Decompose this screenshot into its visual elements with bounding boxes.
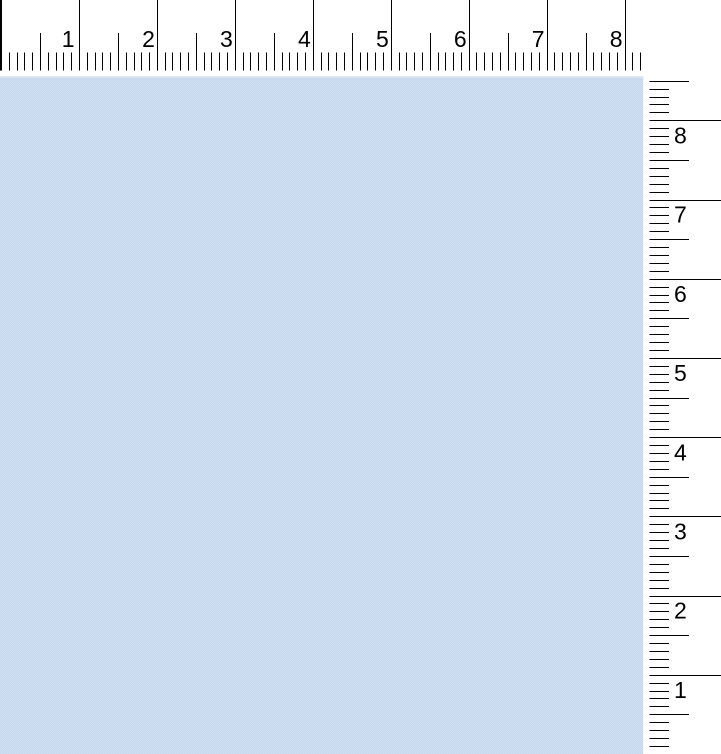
svg-text:1: 1: [62, 26, 75, 52]
svg-text:1: 1: [674, 677, 687, 703]
svg-text:6: 6: [674, 281, 687, 307]
svg-text:8: 8: [610, 26, 623, 52]
svg-text:2: 2: [674, 598, 687, 624]
svg-text:3: 3: [220, 26, 233, 52]
svg-text:4: 4: [674, 439, 687, 465]
svg-text:7: 7: [532, 26, 545, 52]
svg-text:7: 7: [674, 202, 687, 228]
svg-text:6: 6: [454, 26, 467, 52]
svg-text:5: 5: [674, 360, 687, 386]
svg-text:8: 8: [674, 123, 687, 149]
svg-text:4: 4: [298, 26, 311, 52]
svg-text:3: 3: [674, 519, 687, 545]
svg-text:2: 2: [142, 26, 155, 52]
svg-text:5: 5: [376, 26, 389, 52]
